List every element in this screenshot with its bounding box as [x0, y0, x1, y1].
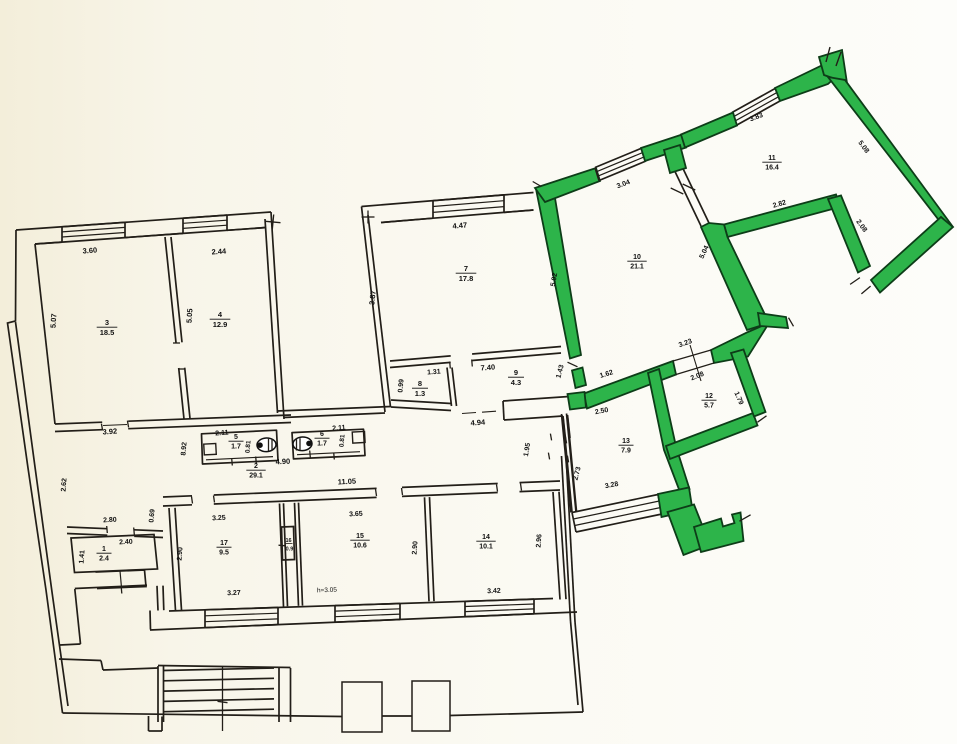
svg-text:10: 10	[633, 254, 641, 261]
svg-text:3.27: 3.27	[227, 590, 241, 597]
svg-text:2.4: 2.4	[99, 556, 109, 563]
svg-text:1: 1	[102, 546, 106, 553]
svg-text:3.92: 3.92	[102, 427, 117, 437]
svg-text:15: 15	[356, 533, 364, 540]
svg-text:3.42: 3.42	[487, 588, 501, 595]
svg-text:1.3: 1.3	[415, 389, 425, 398]
svg-text:3.25: 3.25	[212, 515, 226, 523]
svg-text:1.7: 1.7	[317, 441, 327, 448]
svg-text:2.11: 2.11	[332, 425, 346, 433]
svg-text:7.40: 7.40	[480, 363, 495, 373]
svg-text:16.4: 16.4	[765, 165, 779, 172]
svg-text:11.05: 11.05	[337, 477, 356, 487]
svg-text:0.81: 0.81	[244, 440, 252, 454]
svg-text:29.1: 29.1	[249, 473, 263, 480]
svg-text:5.7: 5.7	[704, 403, 714, 410]
svg-text:0.99: 0.99	[397, 379, 405, 393]
svg-text:2.40: 2.40	[119, 539, 133, 547]
svg-text:9: 9	[514, 368, 518, 377]
svg-text:1.7: 1.7	[231, 444, 241, 451]
svg-text:2: 2	[254, 463, 258, 470]
svg-text:4.47: 4.47	[452, 220, 467, 230]
svg-text:10.1: 10.1	[479, 544, 493, 551]
svg-text:2.80: 2.80	[103, 517, 117, 525]
svg-text:3.87: 3.87	[367, 290, 377, 305]
svg-text:2.90: 2.90	[412, 541, 420, 555]
svg-text:14: 14	[482, 534, 490, 541]
svg-text:9.5: 9.5	[219, 550, 229, 557]
svg-text:17.8: 17.8	[459, 274, 474, 283]
svg-text:2.11: 2.11	[215, 430, 229, 438]
svg-text:13: 13	[622, 438, 630, 445]
svg-text:10.6: 10.6	[353, 543, 367, 550]
svg-text:1.41: 1.41	[79, 550, 87, 564]
svg-text:3: 3	[105, 318, 109, 327]
svg-text:12: 12	[705, 393, 713, 400]
svg-text:7.9: 7.9	[621, 448, 631, 455]
svg-text:11: 11	[768, 155, 776, 162]
svg-text:12.9: 12.9	[213, 320, 228, 329]
svg-text:7: 7	[464, 264, 468, 273]
svg-text:5: 5	[234, 434, 238, 441]
svg-text:2.44: 2.44	[211, 246, 227, 256]
svg-text:6: 6	[320, 431, 324, 438]
svg-text:2.96: 2.96	[536, 534, 544, 548]
svg-text:17: 17	[220, 540, 228, 547]
svg-text:2.62: 2.62	[61, 478, 69, 492]
svg-text:4.3: 4.3	[511, 378, 521, 387]
svg-text:18.5: 18.5	[100, 328, 115, 337]
svg-text:3.60: 3.60	[82, 246, 97, 256]
svg-text:h=3.05: h=3.05	[317, 587, 338, 595]
svg-text:5.07: 5.07	[49, 313, 59, 328]
svg-text:4.94: 4.94	[470, 417, 486, 427]
svg-text:0.9: 0.9	[286, 547, 294, 553]
svg-text:8.92: 8.92	[180, 442, 188, 456]
svg-text:5.05: 5.05	[185, 308, 195, 323]
svg-text:4.90: 4.90	[275, 457, 290, 467]
svg-text:3.65: 3.65	[349, 511, 363, 519]
svg-text:0.81: 0.81	[338, 434, 346, 448]
svg-text:8: 8	[418, 379, 422, 388]
svg-text:0.69: 0.69	[148, 509, 156, 523]
svg-text:1.31: 1.31	[427, 369, 441, 377]
svg-text:21.1: 21.1	[630, 264, 644, 271]
svg-text:2.90: 2.90	[177, 547, 185, 561]
